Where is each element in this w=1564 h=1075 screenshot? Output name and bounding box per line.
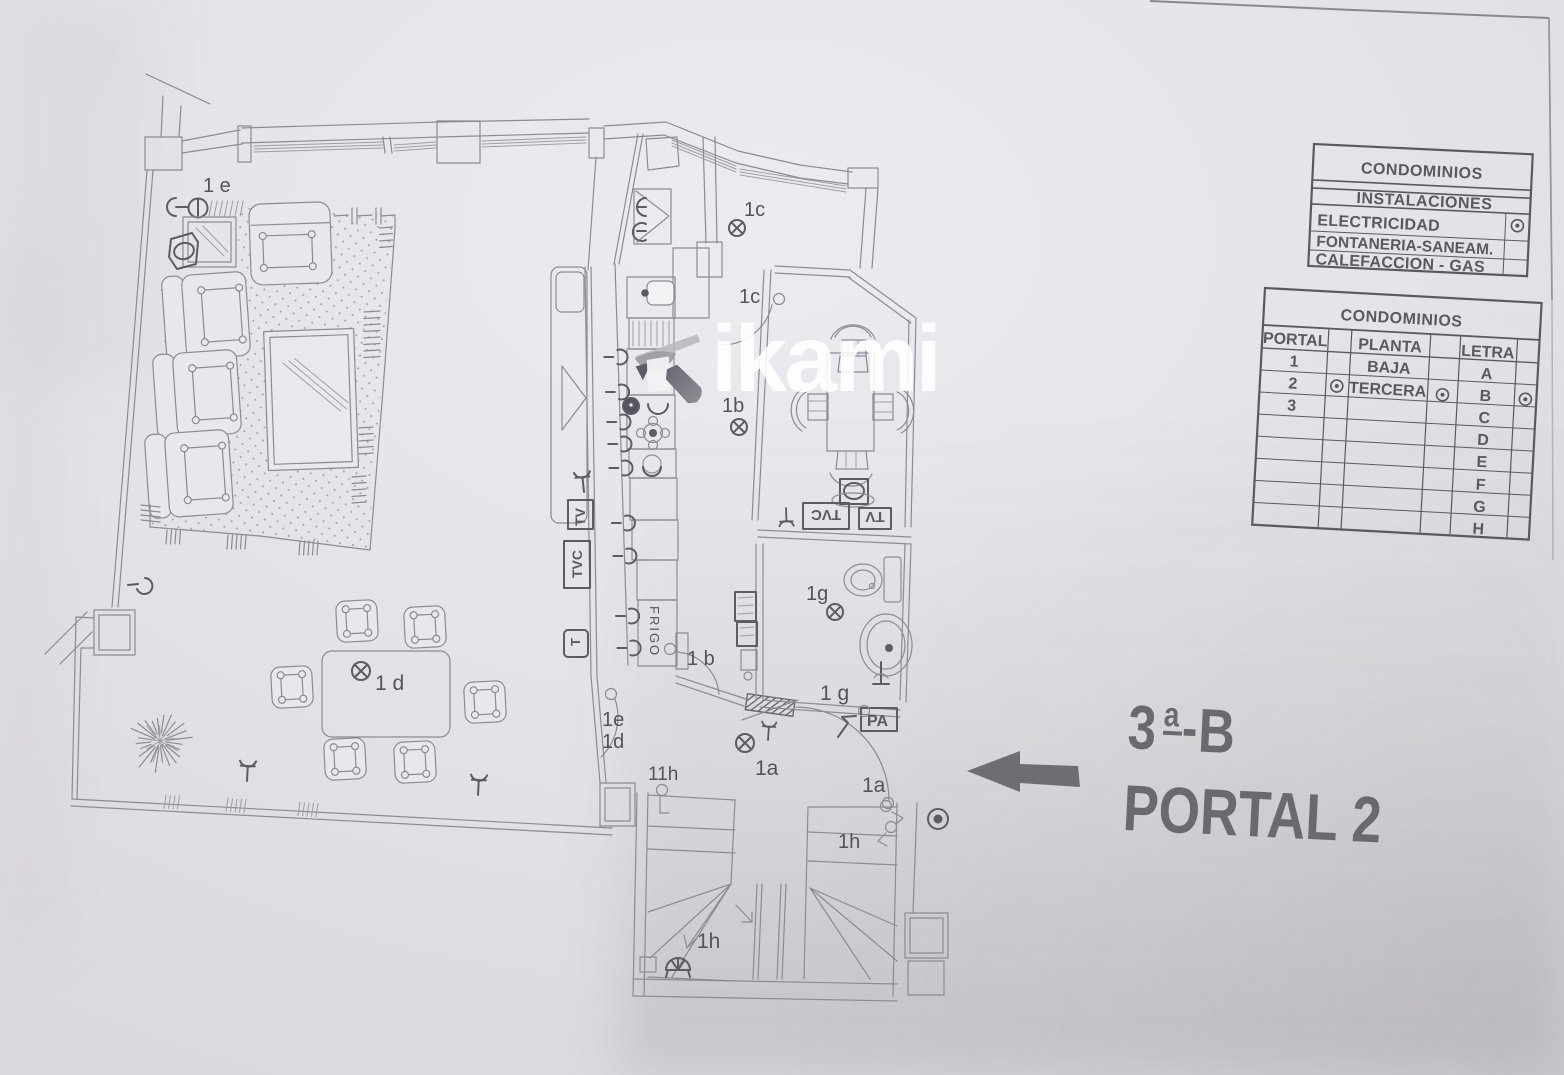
svg-text:T: T bbox=[568, 638, 583, 646]
svg-text:11h: 11h bbox=[648, 764, 678, 785]
svg-text:PORTAL 2: PORTAL 2 bbox=[1121, 771, 1383, 857]
svg-text:a: a bbox=[1163, 695, 1181, 734]
svg-text:3: 3 bbox=[1287, 397, 1297, 414]
svg-text:TVC: TVC bbox=[811, 506, 841, 523]
svg-text:H: H bbox=[1472, 521, 1484, 539]
svg-text:1h: 1h bbox=[697, 930, 720, 953]
svg-text:G: G bbox=[1473, 499, 1486, 517]
svg-text:PLANTA: PLANTA bbox=[1358, 336, 1423, 356]
svg-text:-: - bbox=[1181, 696, 1199, 759]
svg-text:PORTAL: PORTAL bbox=[1263, 330, 1329, 350]
svg-text:3: 3 bbox=[1126, 693, 1158, 763]
svg-text:LETRA: LETRA bbox=[1461, 343, 1516, 363]
svg-text:1 e: 1 e bbox=[203, 175, 231, 197]
svg-text:1c: 1c bbox=[739, 286, 760, 308]
svg-text:C: C bbox=[1478, 410, 1491, 428]
svg-text:F: F bbox=[1475, 477, 1486, 495]
svg-text:B: B bbox=[1479, 388, 1491, 406]
svg-text:D: D bbox=[1477, 432, 1489, 450]
svg-text:TV: TV bbox=[572, 507, 588, 526]
svg-text:1a: 1a bbox=[862, 774, 886, 797]
svg-text:FRIGO: FRIGO bbox=[647, 606, 662, 657]
svg-text:1a: 1a bbox=[755, 757, 779, 780]
svg-text:E: E bbox=[1476, 454, 1488, 472]
svg-text:1d: 1d bbox=[602, 731, 624, 753]
svg-text:1g: 1g bbox=[806, 583, 828, 605]
svg-text:ikami: ikami bbox=[711, 306, 939, 412]
svg-text:B: B bbox=[1197, 697, 1237, 768]
svg-text:PA: PA bbox=[867, 713, 888, 730]
svg-text:1 d: 1 d bbox=[375, 672, 404, 695]
svg-text:1e: 1e bbox=[602, 709, 624, 731]
svg-text:1h: 1h bbox=[838, 831, 860, 853]
svg-text:TV: TV bbox=[865, 508, 884, 525]
svg-text:TVC: TVC bbox=[569, 550, 585, 578]
svg-text:1: 1 bbox=[1289, 353, 1299, 370]
svg-text:A: A bbox=[1480, 366, 1493, 384]
svg-text:BAJA: BAJA bbox=[1367, 359, 1412, 378]
svg-text:1c: 1c bbox=[744, 199, 765, 221]
svg-text:1 b: 1 b bbox=[687, 648, 715, 670]
svg-text:1 g: 1 g bbox=[820, 682, 849, 705]
svg-text:2: 2 bbox=[1288, 375, 1298, 392]
